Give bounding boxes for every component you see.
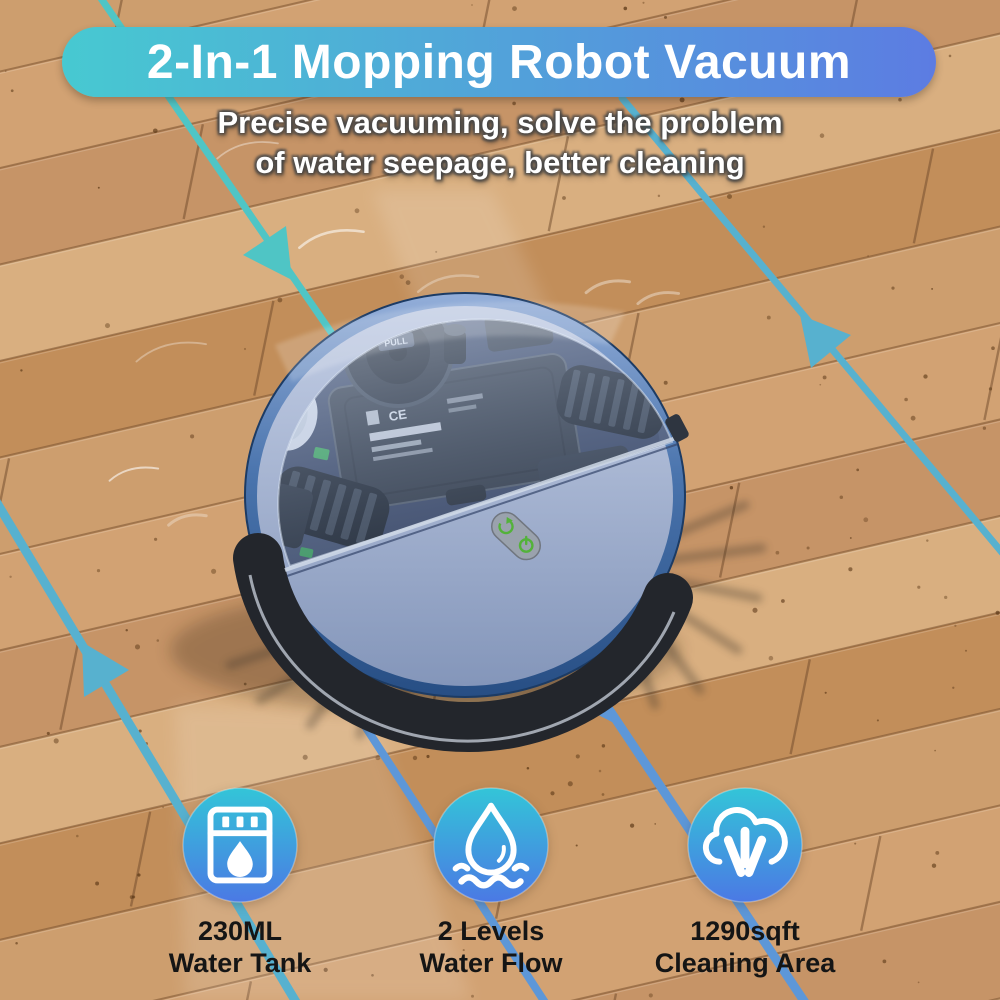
subtitle-line-1: Precise vacuuming, solve the problem <box>0 103 1000 143</box>
subtitle-line-2: of water seepage, better cleaning <box>0 143 1000 183</box>
title-banner: 2-In-1 Mopping Robot Vacuum <box>62 27 936 97</box>
page-title: 2-In-1 Mopping Robot Vacuum <box>147 35 851 90</box>
product-hero-image: CE <box>0 0 1000 1000</box>
subtitle: Precise vacuuming, solve the problem of … <box>0 103 1000 183</box>
